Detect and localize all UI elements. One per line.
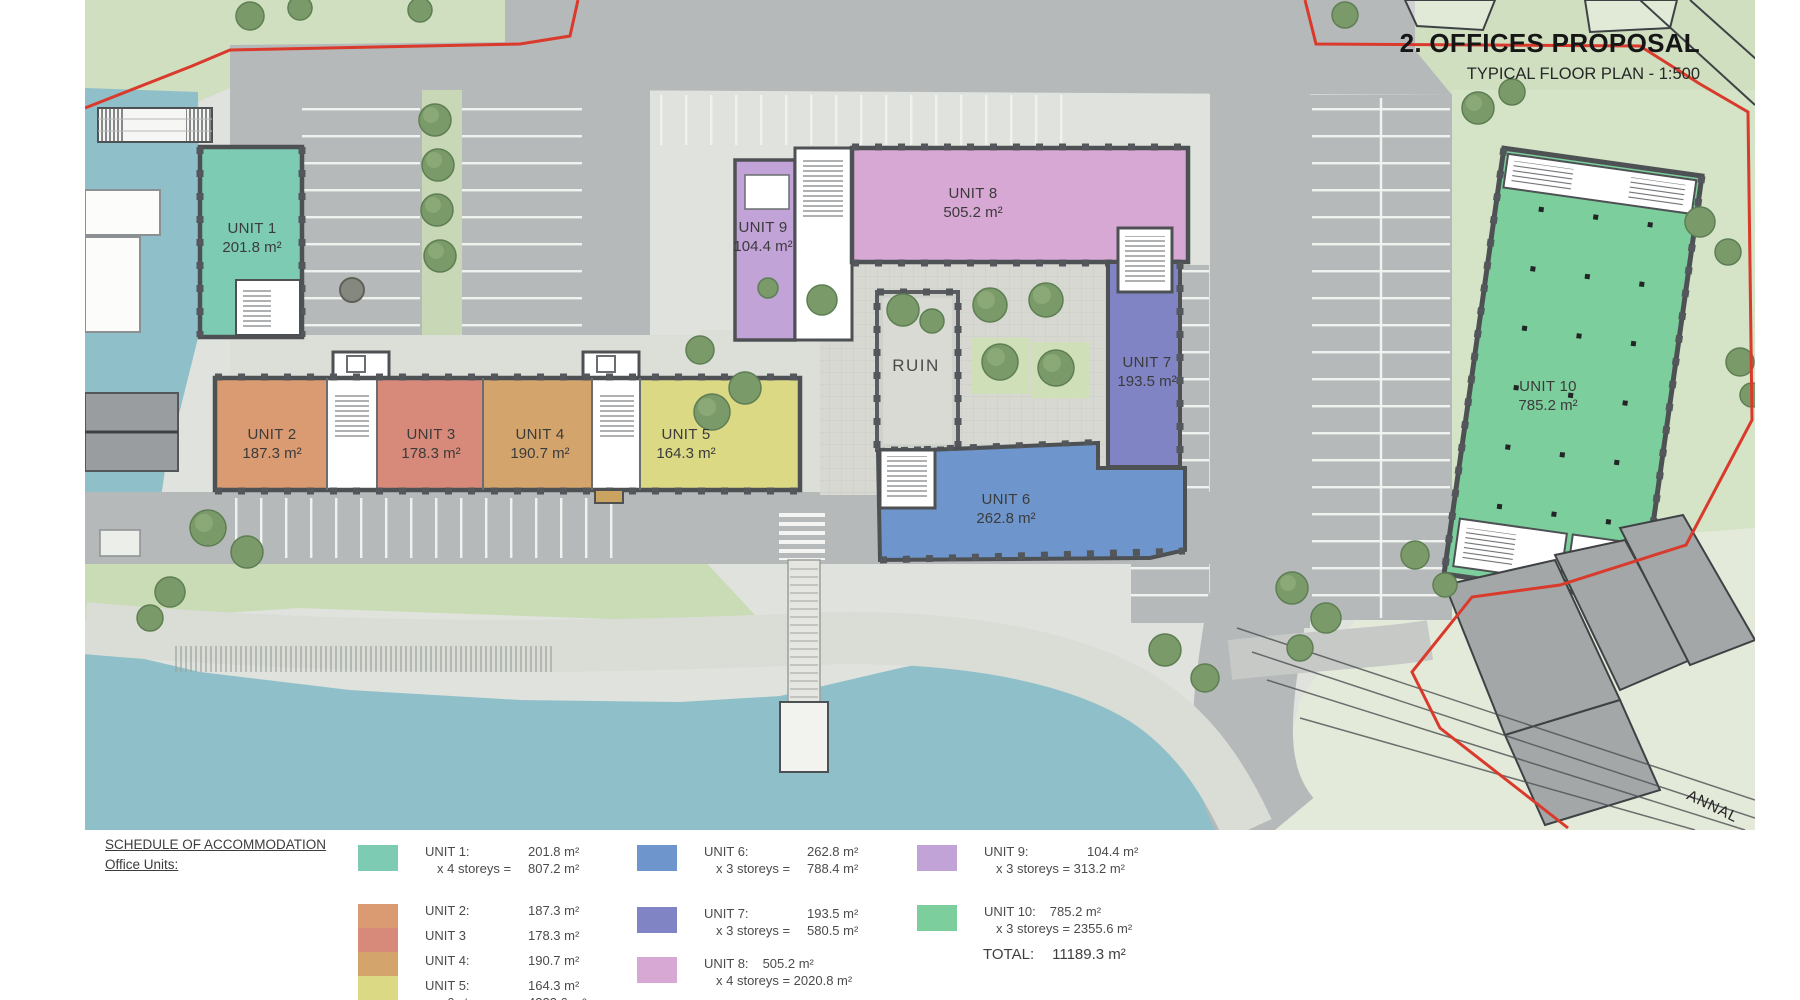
legend-unit-6: UNIT 6:262.8 m² x 3 storeys =788.4 m² (637, 843, 858, 877)
legend-unit-7: UNIT 7:193.5 m² x 3 storeys =580.5 m² (637, 905, 858, 939)
title-subheading: TYPICAL FLOOR PLAN - 1:500 (1400, 65, 1700, 84)
drawing-title: 2. OFFICES PROPOSAL TYPICAL FLOOR PLAN -… (1400, 28, 1700, 84)
unit-10-label: UNIT 10785.2 m² (1518, 377, 1577, 415)
parking-south (235, 498, 635, 558)
path-connector (1230, 640, 1430, 660)
bank-steps (175, 646, 555, 672)
legend-unit-9: UNIT 9:104.4 m² x 3 storeys = 313.2 m² (917, 843, 1138, 877)
unit-5-entrance (595, 490, 623, 503)
swatch-unit-6 (637, 845, 677, 871)
unit-2-label: UNIT 2187.3 m² (242, 425, 301, 463)
offices-proposal-drawing: UNIT 1201.8 m² UNIT 2187.3 m² UNIT 3178.… (0, 0, 1800, 1000)
swatch-unit-1 (358, 845, 398, 871)
unit-5-label: UNIT 5164.3 m² (656, 425, 715, 463)
footbridge (98, 108, 212, 142)
ruin-label: RUIN (892, 356, 940, 376)
unit-7-label: UNIT 7193.5 m² (1117, 353, 1176, 391)
swatch-units-2-5 (358, 904, 398, 1000)
unit-4-label: UNIT 4190.7 m² (510, 425, 569, 463)
legend-unit-10: UNIT 10:785.2 m² x 3 storeys = 2355.6 m² (917, 903, 1132, 937)
swatch-unit-8 (637, 957, 677, 983)
total-area: TOTAL:11189.3 m² (983, 946, 1126, 963)
legend-unit-8: UNIT 8:505.2 m² x 4 storeys = 2020.8 m² (637, 955, 852, 989)
total-label: TOTAL: (983, 946, 1034, 963)
legend-heading: SCHEDULE OF ACCOMMODATION Office Units: (105, 835, 326, 876)
swatch-unit-9 (917, 845, 957, 871)
unit-8-label: UNIT 8505.2 m² (943, 184, 1002, 222)
swatch-unit-7 (637, 907, 677, 933)
title-heading: 2. OFFICES PROPOSAL (1400, 28, 1700, 59)
unit-3-label: UNIT 3178.3 m² (401, 425, 460, 463)
site-plan-graphic (85, 0, 1755, 830)
site-plan: UNIT 1201.8 m² UNIT 2187.3 m² UNIT 3178.… (85, 0, 1755, 830)
legend-units-2-5: UNIT 2:187.3 m² UNIT 3178.3 m² UNIT 4:19… (358, 902, 587, 1000)
unit-6-label: UNIT 6262.8 m² (976, 490, 1035, 528)
schedule-legend: SCHEDULE OF ACCOMMODATION Office Units: … (0, 830, 1800, 1000)
total-value: 11189.3 m² (1052, 946, 1126, 963)
swatch-unit-10 (917, 905, 957, 931)
unit-1-label: UNIT 1201.8 m² (222, 219, 281, 257)
legend-unit-1: UNIT 1:201.8 m² x 4 storeys =807.2 m² (358, 843, 579, 877)
parking-top-middle (655, 95, 1080, 145)
planter (340, 278, 364, 302)
unit-9-label: UNIT 9104.4 m² (733, 218, 792, 256)
